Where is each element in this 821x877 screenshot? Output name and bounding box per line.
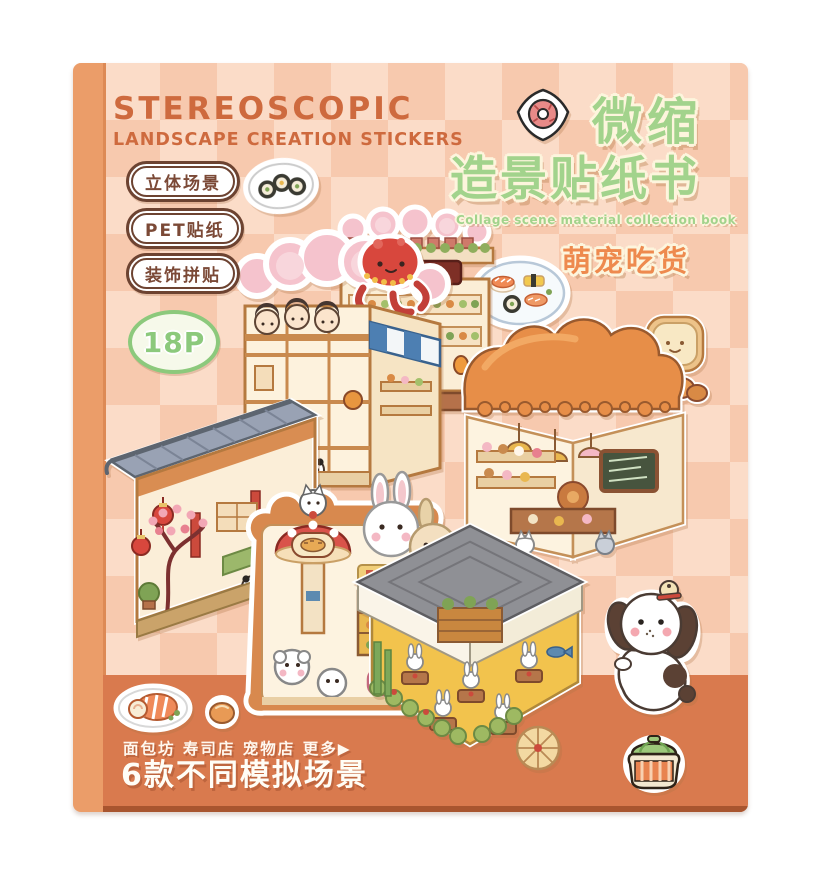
dog-hat-icon — [657, 581, 681, 600]
subtitle-collection-book: Collage scene material collection book — [456, 214, 736, 227]
umbrella-icon — [517, 727, 559, 769]
back-cabinet — [438, 596, 502, 642]
feature-badge-label: 立体场景 — [131, 166, 235, 197]
bread-bun-sticker — [202, 694, 242, 730]
fish-banner-icon — [547, 647, 572, 657]
theme-badge: 萌宠吃货 — [562, 246, 690, 276]
octopus-icon — [359, 236, 427, 312]
page-count-badge: 18P — [128, 310, 220, 374]
puppy-sticker — [595, 572, 710, 727]
feature-badge-collage: 装饰拼贴 — [126, 253, 240, 294]
feature-badge-label: 装饰拼贴 — [131, 258, 235, 289]
tagline: 6款不同模拟场景 — [121, 760, 368, 792]
salmon-roll-sticker — [113, 683, 193, 733]
feature-badge-3d-scene: 立体场景 — [126, 161, 240, 202]
dog-head — [621, 594, 681, 654]
sticker-book-cover: STEREOSCOPIC LANDSCAPE CREATION STICKERS… — [73, 63, 748, 812]
maki-plate-sticker — [240, 154, 321, 218]
restaurant-scene — [350, 520, 590, 790]
dog-paw — [615, 658, 631, 670]
title-cn-line2: 造景贴纸书 — [450, 155, 700, 204]
kid-faces — [255, 298, 339, 334]
lantern-icon — [344, 391, 362, 409]
subtitle-en: LANDSCAPE CREATION STICKERS — [113, 131, 464, 149]
feature-badge-pet-sticker: PET贴纸 — [126, 208, 244, 249]
title-cn-line1: 微缩 — [592, 96, 702, 149]
product-photo: STEREOSCOPIC LANDSCAPE CREATION STICKERS… — [0, 0, 821, 877]
bread-roof-icon — [465, 320, 683, 417]
book-spine — [73, 63, 106, 812]
title-en: STEREOSCOPIC — [113, 93, 413, 126]
shop-categories: 面包坊 寿司店 宠物店 更多▶ — [123, 741, 352, 757]
donut-sticker — [512, 86, 574, 144]
jam-jar-sticker — [622, 730, 686, 792]
feature-badge-label: PET贴纸 — [131, 213, 239, 244]
